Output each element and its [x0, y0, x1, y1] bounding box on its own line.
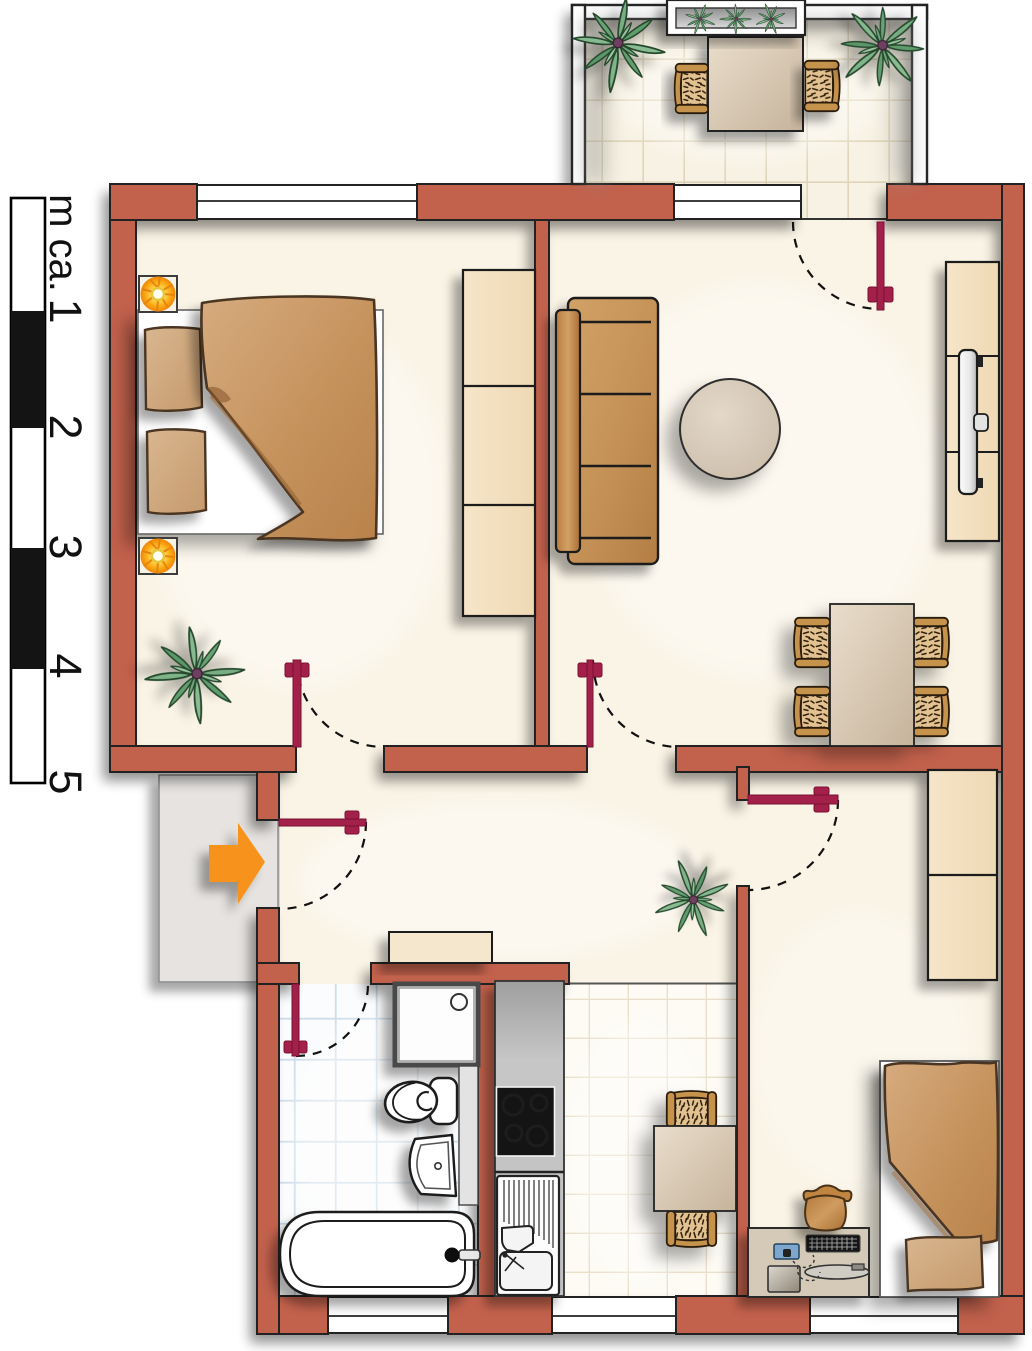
svg-text:3: 3: [40, 534, 91, 559]
svg-text:4: 4: [40, 653, 91, 678]
svg-text:2: 2: [40, 414, 91, 439]
svg-text:1: 1: [40, 298, 91, 323]
svg-text:5: 5: [40, 769, 91, 794]
svg-text:m ca.: m ca.: [41, 194, 85, 292]
